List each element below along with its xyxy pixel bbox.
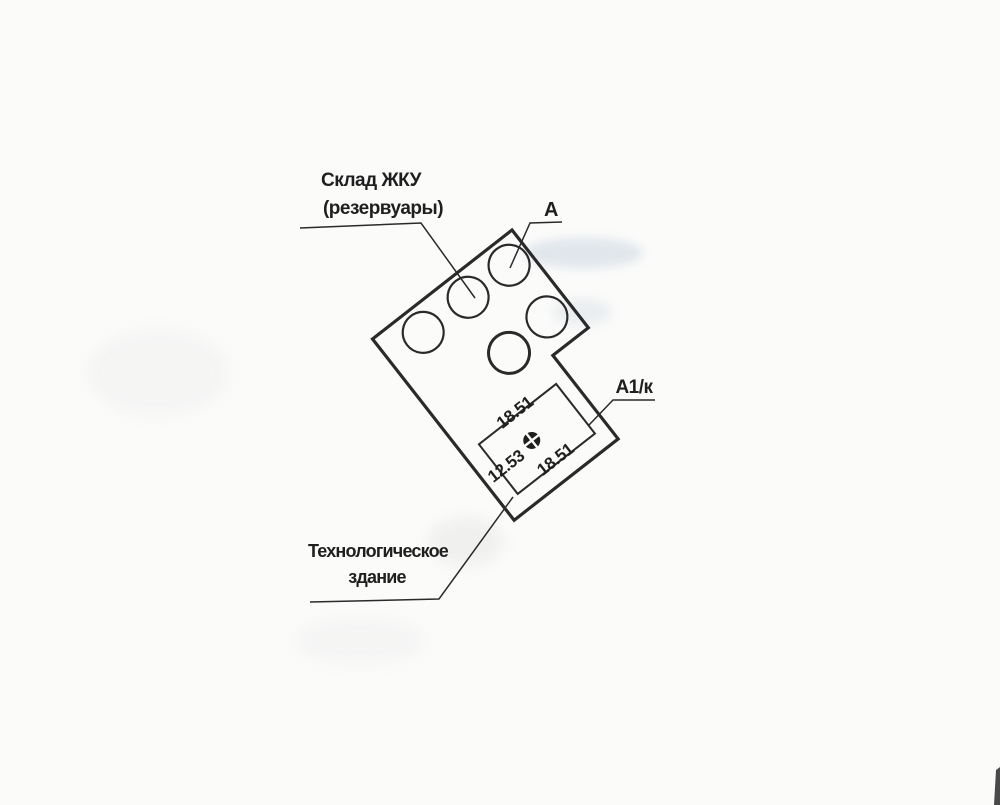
leader-storage: [300, 223, 475, 298]
tech-building-label-line2: здание: [348, 567, 406, 587]
scanned-site-plan: 18.51 18.51 12.53 Склад ЖКУ (резервуары)…: [0, 0, 1000, 805]
reservoir-tank-2: [439, 269, 497, 327]
elevation-mark-right: 18.51: [533, 439, 577, 479]
section-a-label: А: [544, 199, 558, 221]
storage-label-line2: (резервуары): [323, 198, 443, 219]
scan-edge-artifact: [994, 767, 1000, 805]
reservoir-tank-3: [394, 304, 452, 362]
reservoir-tank-5: [480, 324, 538, 382]
tech-building-label-line1: Технологическое: [308, 541, 449, 561]
section-a1k-label: А1/к: [615, 377, 653, 398]
building-group: 18.51 18.51 12.53: [373, 230, 654, 520]
elevation-mark-top: 18.51: [493, 392, 537, 432]
building-outline: [373, 230, 654, 520]
reservoir-tank-1: [480, 236, 538, 294]
survey-benchmark-icon: [519, 428, 544, 453]
site-plan-drawing: 18.51 18.51 12.53 Склад ЖКУ (резервуары)…: [0, 0, 1000, 805]
reservoir-tank-4: [518, 288, 576, 346]
storage-label-line1: Склад ЖКУ: [321, 170, 422, 191]
